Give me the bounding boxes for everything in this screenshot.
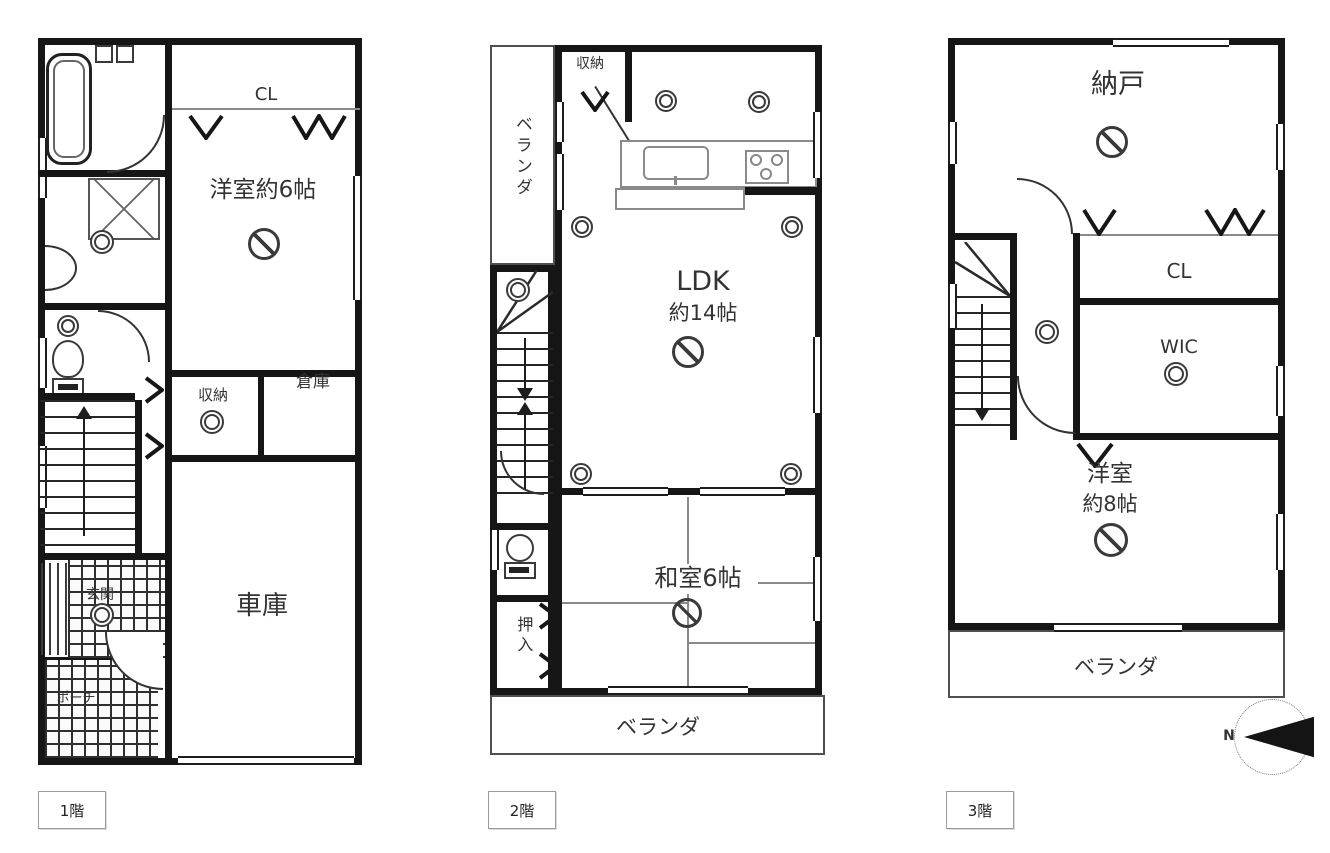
floor-3-tag: 3階 — [946, 791, 1014, 829]
ceiling-light-icon — [248, 228, 280, 260]
closet-line — [172, 108, 360, 110]
hanger-zigzag-icon — [1082, 208, 1117, 236]
wic-label: WIC — [1124, 336, 1234, 360]
kitchen-sink-icon — [643, 146, 709, 180]
toilet-tank-detail — [58, 384, 78, 390]
door-zigzag-icon — [538, 602, 558, 630]
ceiling-light-icon — [672, 598, 702, 628]
toilet-bowl-icon — [52, 340, 84, 378]
floor-1-tag: 1階 — [38, 791, 106, 829]
window — [813, 557, 822, 621]
toilet-bowl-icon — [506, 534, 534, 562]
veranda-label: ベランダ — [1056, 654, 1176, 680]
ceiling-light-icon — [1094, 523, 1128, 557]
stairs-down-arrow — [524, 338, 526, 388]
garage-door-opening — [178, 756, 354, 765]
stairs-up-arrow — [83, 418, 85, 536]
burner-icon — [760, 168, 772, 180]
downlight-icon — [781, 216, 803, 238]
door-zigzag-icon — [580, 90, 610, 112]
ceiling-light-icon — [1096, 126, 1128, 158]
wall — [38, 393, 135, 400]
window — [608, 686, 748, 695]
wall — [490, 523, 555, 530]
bathtub-icon — [46, 53, 92, 165]
wall — [38, 170, 165, 177]
downlight-icon — [1035, 320, 1059, 344]
floor-3-plan: 納戸 CL WIC 洋室 約8帖 ベランダ — [946, 36, 1288, 708]
window — [353, 176, 362, 300]
wall — [745, 187, 822, 195]
floor-1-plan: CL 洋室約6帖 収納 倉庫 車庫 玄関 ポーチ — [38, 38, 362, 765]
wall — [135, 400, 142, 560]
closet-label: CL — [1124, 258, 1234, 284]
faucet-icon — [95, 45, 113, 63]
window — [1054, 623, 1182, 632]
burner-icon — [750, 154, 762, 166]
stairs-down-arrowhead — [517, 388, 533, 401]
window — [490, 530, 499, 570]
floor-2-plan: ベランダ ベランダ 収納 LDK 約14帖 — [488, 42, 828, 763]
stairs-down-arrowhead — [974, 408, 990, 421]
sliding-door-opening — [583, 487, 668, 496]
garage-label: 車庫 — [202, 591, 322, 623]
burner-icon — [771, 154, 783, 166]
entrance-step-stripes — [41, 563, 67, 655]
ldk-size-label: 約14帖 — [638, 300, 768, 326]
western-room-label: 洋室約6帖 — [178, 175, 348, 205]
window — [555, 154, 564, 210]
ceiling-light-icon — [672, 336, 704, 368]
downlight-icon — [571, 216, 593, 238]
window — [948, 284, 957, 328]
floor-2-tag: 2階 — [488, 791, 556, 829]
window — [555, 102, 564, 142]
floor-2-tag-label: 2階 — [510, 800, 535, 821]
door-zigzag-icon — [144, 432, 164, 460]
stairs-winder — [955, 242, 1010, 296]
floor-plan-image: CL 洋室約6帖 収納 倉庫 車庫 玄関 ポーチ ベランダ ベランダ — [0, 0, 1330, 853]
window — [813, 337, 822, 413]
storage-label: 収納 — [168, 386, 258, 406]
window — [38, 338, 47, 388]
wall — [548, 523, 555, 602]
counter-front — [615, 188, 745, 210]
porch-label: ポーチ — [40, 690, 112, 708]
wall — [1073, 433, 1285, 440]
window — [948, 122, 957, 164]
window — [813, 112, 822, 178]
hanger-zigzag-icon — [291, 114, 347, 140]
veranda-label: ベランダ — [558, 714, 758, 740]
door-zigzag-icon — [144, 376, 164, 404]
nando-label: 納戸 — [1058, 68, 1178, 102]
door-zigzag-icon — [538, 652, 558, 680]
wall — [625, 45, 632, 122]
wall — [948, 233, 1017, 240]
window — [1276, 514, 1285, 570]
downlight-icon — [57, 315, 79, 337]
floor-1-tag-label: 1階 — [60, 800, 85, 821]
downlight-icon — [200, 410, 224, 434]
tatami-line — [562, 602, 687, 604]
sink-tap-icon — [674, 176, 677, 185]
stairs-up-arrowhead — [76, 406, 92, 419]
downlight-icon — [90, 230, 114, 254]
toilet-tank-detail — [509, 567, 529, 573]
downlight-icon — [655, 90, 677, 112]
floor-3-tag-label: 3階 — [968, 800, 993, 821]
entrance-label: 玄関 — [60, 586, 140, 604]
western-room-label: 洋室 — [1050, 460, 1170, 488]
downlight-icon — [748, 91, 770, 113]
downlight-icon — [506, 278, 530, 302]
window — [1276, 366, 1285, 416]
washitsu-label: 和室6帖 — [638, 564, 758, 594]
oshiire-label: 押入 — [510, 598, 536, 674]
wall — [165, 462, 172, 758]
hanger-zigzag-icon — [188, 114, 224, 140]
storage-label: 収納 — [558, 54, 622, 74]
wall — [1080, 298, 1285, 305]
faucet-icon — [116, 45, 134, 63]
stairs-treads — [40, 400, 135, 553]
sliding-door-opening — [700, 487, 785, 496]
balcony-left-label: ベランダ — [506, 82, 536, 232]
window — [1276, 124, 1285, 170]
wall — [38, 553, 165, 560]
western-room-size-label: 約8帖 — [1050, 491, 1170, 517]
window — [1113, 38, 1229, 47]
downlight-icon — [570, 463, 592, 485]
stairs-down-arrow — [981, 304, 983, 410]
closet-label: CL — [172, 82, 360, 108]
tatami-line — [689, 642, 815, 644]
downlight-icon — [1164, 362, 1188, 386]
compass-north-label: N — [1218, 726, 1240, 746]
wall — [38, 303, 165, 310]
ldk-label: LDK — [638, 266, 768, 298]
downlight-icon — [90, 603, 114, 627]
downlight-icon — [780, 463, 802, 485]
warehouse-label: 倉庫 — [264, 372, 362, 394]
hanger-zigzag-icon — [1204, 208, 1266, 236]
wall — [1010, 240, 1017, 440]
